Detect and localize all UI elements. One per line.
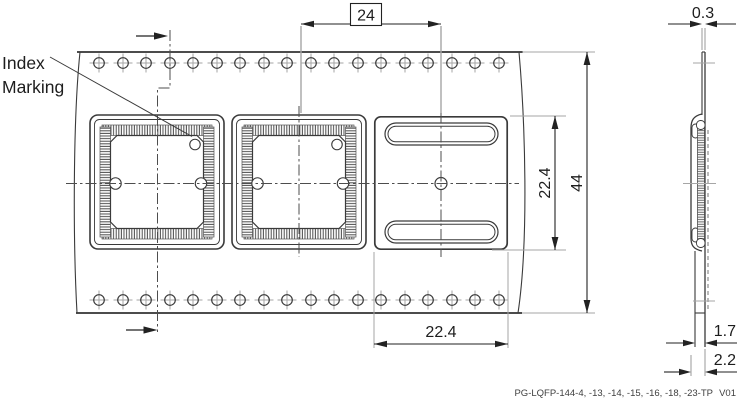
dim-pocket-depth-total-value: 2.2 (714, 352, 736, 369)
dim-arrow-left-icon (705, 369, 717, 375)
sprocket-hole (349, 54, 368, 73)
dim-arrow-up-icon (584, 52, 591, 65)
sprocket-hole (396, 54, 415, 73)
dim-arrow-left-icon (374, 341, 387, 348)
sprocket-hole (114, 54, 133, 73)
sprocket-hole (419, 54, 438, 73)
sprocket-hole (419, 291, 438, 310)
dim-arrow-up-icon (552, 116, 559, 129)
dim-arrow-down-icon (552, 237, 559, 250)
sprocket-hole (278, 54, 297, 73)
sprocket-hole (372, 54, 391, 73)
dim-arrow-left-icon (301, 21, 314, 28)
dim-arrow-down-icon (584, 300, 591, 313)
sprocket-hole (490, 291, 509, 310)
sprocket-hole (396, 291, 415, 310)
dim-pocket-pitch-value: 24 (357, 8, 375, 25)
sprocket-hole (231, 291, 250, 310)
dim-pocket-pitch: 24 (301, 4, 441, 114)
sprocket-hole (184, 291, 203, 310)
sprocket-hole (137, 291, 156, 310)
sprocket-hole (466, 54, 485, 73)
arrow-right-icon (144, 326, 158, 333)
sprocket-hole (137, 54, 156, 73)
sprocket-hole (325, 54, 344, 73)
tape-side-view (683, 52, 716, 347)
carrier-tape-packing-drawing: 24 44 22.4 22.4 (0, 0, 737, 403)
dim-arrow-right-icon (679, 369, 691, 375)
dim-pocket-depth-inner-value: 1.7 (714, 323, 736, 340)
dim-arrow-right-icon (495, 341, 508, 348)
dim-pocket-width: 22.4 (374, 252, 508, 348)
drawing-number: PG-LQFP-144-4, -13, -14, -15, -16, -18, … (514, 388, 713, 399)
drawing-version: V01 (719, 388, 736, 399)
sprocket-hole (208, 54, 227, 73)
sprocket-hole (231, 54, 250, 73)
sprocket-hole (255, 291, 274, 310)
sprocket-hole (255, 54, 274, 73)
drawing-svg: 24 44 22.4 22.4 (0, 0, 737, 403)
sprocket-hole (443, 291, 462, 310)
dim-arrow-right-icon (428, 21, 441, 28)
sprocket-hole (90, 54, 109, 73)
title-block-text: PG-LQFP-144-4, -13, -14, -15, -16, -18, … (514, 388, 736, 399)
sprocket-hole (208, 291, 227, 310)
dim-arrow-left-icon (705, 340, 717, 346)
tape-right-break-line (518, 52, 525, 313)
sprocket-hole (302, 291, 321, 310)
dim-tape-width: 44 (522, 52, 595, 313)
sprocket-hole (302, 54, 321, 73)
sprocket-hole (114, 291, 133, 310)
sprocket-holes-bottom-row (90, 291, 509, 310)
sprocket-hole (90, 291, 109, 310)
sprocket-holes-top-row (90, 54, 509, 73)
index-marking-label-line2: Marking (2, 77, 64, 97)
dim-arrow-right-icon (683, 340, 695, 346)
tape-left-break-line (74, 52, 80, 313)
dim-pocket-length-value: 22.4 (537, 167, 554, 198)
sprocket-hole (443, 54, 462, 73)
dim-tape-thickness: 0.3 (668, 5, 736, 50)
sprocket-hole (349, 291, 368, 310)
arrow-right-icon (154, 32, 168, 39)
dim-pocket-width-value: 22.4 (425, 324, 456, 341)
sprocket-hole (161, 291, 180, 310)
sprocket-hole (490, 54, 509, 73)
dim-pocket-depth-total: 2.2 (664, 349, 737, 376)
feed-arrow-bottom (126, 326, 158, 333)
dim-tape-thickness-value: 0.3 (692, 5, 714, 22)
dim-pocket-depth-inner: 1.7 (666, 323, 737, 346)
sprocket-hole (184, 54, 203, 73)
sprocket-hole (278, 291, 297, 310)
feed-arrow-top (136, 32, 168, 39)
index-marking-label-line1: Index (2, 53, 45, 73)
dim-tape-width-value: 44 (569, 174, 586, 192)
sprocket-hole (466, 291, 485, 310)
sprocket-hole (325, 291, 344, 310)
